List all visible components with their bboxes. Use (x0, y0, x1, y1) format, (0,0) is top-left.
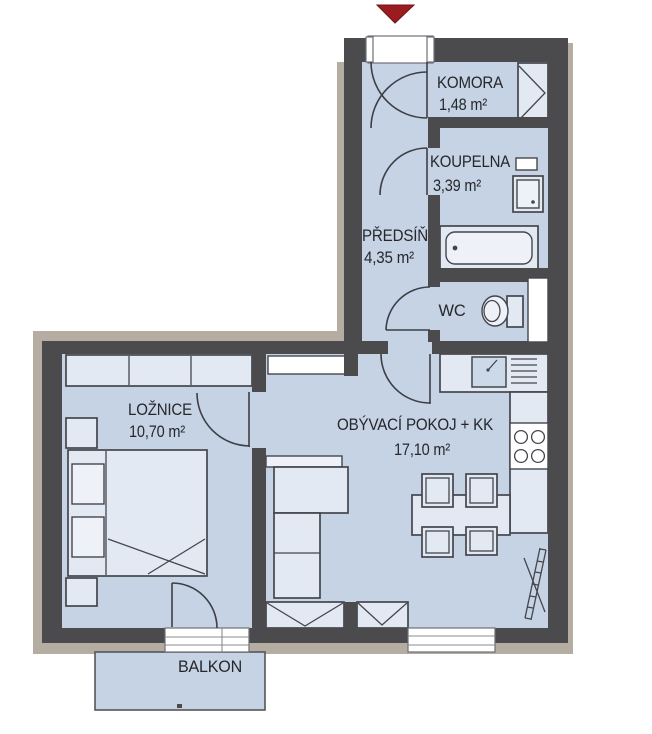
room-area-predsin: 4,35 m² (364, 249, 415, 267)
room-area-loznice: 10,70 m² (129, 423, 186, 441)
furniture-wc (482, 296, 523, 327)
room-label-predsin: PŘEDSÍŇ (362, 226, 428, 245)
sofa-seat-side (274, 513, 320, 598)
living-room-window (408, 628, 495, 652)
wall-komora (428, 117, 548, 128)
wall-closet-stub (344, 602, 357, 628)
komora-wardrobe (518, 63, 548, 123)
room-label-komora: KOMORA (437, 74, 503, 92)
toilet-tank (507, 296, 523, 327)
balcony-drain (177, 704, 182, 708)
wall-corridor-left (344, 38, 362, 342)
room-label-obyvaci: OBÝVACÍ POKOJ + KK (337, 415, 493, 434)
facing-corridor-left (337, 62, 344, 341)
wall-bath-partition (428, 117, 440, 148)
wall-bedroom-partition (252, 354, 266, 392)
kitchen-sink (472, 357, 506, 387)
entrance-arrow-icon (377, 5, 414, 23)
wall-main-top (42, 341, 388, 354)
washing-machine-door (517, 180, 539, 208)
room-label-wc: WC (439, 302, 466, 320)
washing-machine-knob (531, 200, 535, 204)
toilet-bowl (482, 296, 508, 326)
furniture-komora (518, 63, 548, 123)
kitchen-faucet-base (486, 368, 489, 371)
wall-corridor-stub (344, 354, 358, 376)
wall-bath-partition (428, 330, 440, 342)
wc-shaft (528, 278, 548, 342)
bedroom-wardrobe (66, 355, 252, 386)
stove (510, 423, 548, 469)
hall-cabinet (268, 356, 347, 374)
bathtub-drain (453, 246, 458, 251)
bed-pillow (72, 517, 104, 557)
entrance-door-jamb (366, 37, 373, 62)
sofa-seat-top (274, 467, 348, 513)
facing-left (33, 331, 42, 654)
wall-main-left (42, 341, 62, 643)
wall-bedroom-partition (252, 448, 266, 628)
wall-right (548, 38, 568, 643)
builtin-closet-left (266, 602, 344, 628)
floor-plan: KOMORA 1,48 m² KOUPELNA 3,39 m² PŘEDSÍŇ … (0, 0, 652, 734)
nightstand-bottom (66, 578, 97, 606)
bed-pillow (72, 464, 104, 504)
balcony-door-threshold (165, 628, 249, 652)
wall-kitchen-top (432, 341, 548, 354)
room-label-balkon: BALKON (178, 658, 242, 676)
room-label-loznice: LOŽNICE (128, 400, 192, 419)
bathroom-shelf (516, 158, 537, 170)
bathtub-basin (446, 232, 532, 264)
room-area-koupelna: 3,39 m² (433, 177, 482, 195)
nightstand-top (66, 418, 97, 448)
facing-top (33, 331, 343, 342)
sofa-back (266, 456, 342, 467)
room-area-obyvaci: 17,10 m² (394, 441, 451, 459)
entrance-door-opening (368, 36, 433, 63)
floor-plan-page: KOMORA 1,48 m² KOUPELNA 3,39 m² PŘEDSÍŇ … (0, 0, 652, 734)
room-area-komora: 1,48 m² (439, 96, 488, 114)
room-label-koupelna: KOUPELNA (430, 153, 510, 171)
entrance-door-jamb (427, 37, 434, 62)
